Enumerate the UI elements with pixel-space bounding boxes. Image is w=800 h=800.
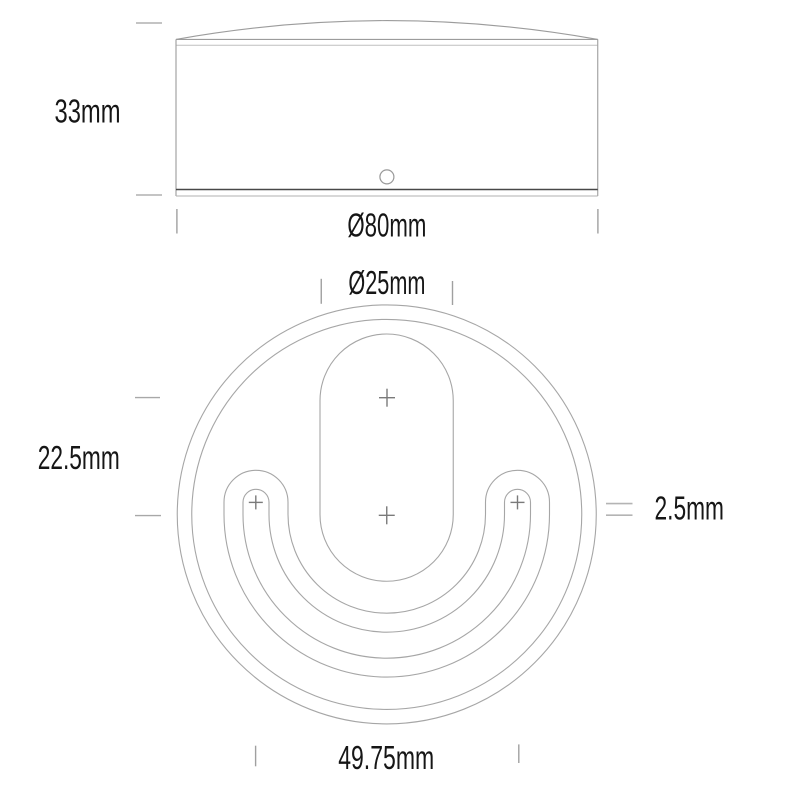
svg-text:49.75mm: 49.75mm xyxy=(338,739,434,776)
svg-text:2.5mm: 2.5mm xyxy=(655,490,725,527)
svg-text:33mm: 33mm xyxy=(55,93,121,130)
svg-text:Ø80mm: Ø80mm xyxy=(347,206,426,243)
svg-text:22.5mm: 22.5mm xyxy=(38,439,120,476)
svg-text:Ø25mm: Ø25mm xyxy=(348,264,425,301)
